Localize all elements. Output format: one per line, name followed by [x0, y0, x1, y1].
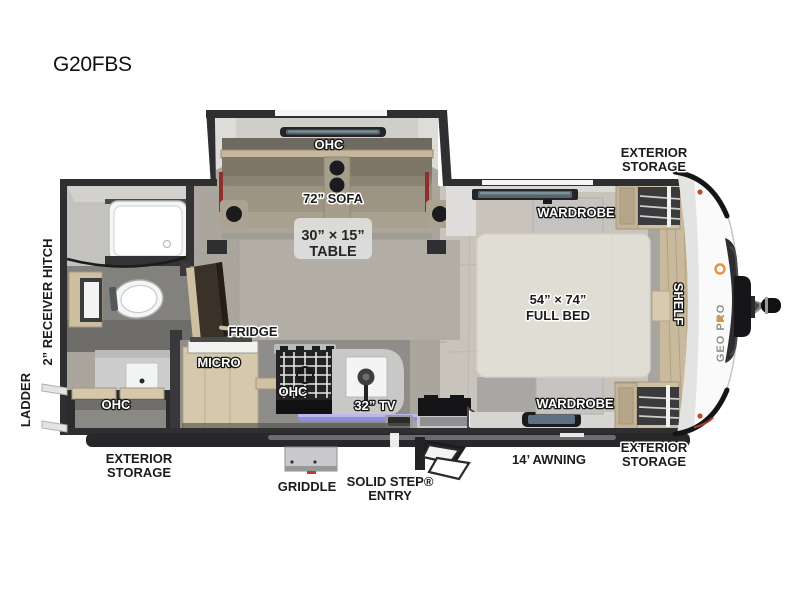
svg-text:54” × 74”: 54” × 74” [530, 292, 587, 307]
svg-text:72” SOFA: 72” SOFA [303, 191, 364, 206]
svg-text:GRIDDLE: GRIDDLE [278, 479, 337, 494]
svg-text:30” × 15”: 30” × 15” [301, 228, 364, 244]
svg-text:14’ AWNING: 14’ AWNING [512, 452, 586, 467]
svg-text:MICRO: MICRO [197, 355, 240, 370]
svg-text:EXTERIOR: EXTERIOR [106, 451, 173, 466]
svg-text:GEO PRO: GEO PRO [715, 304, 727, 362]
svg-text:LADDER: LADDER [18, 372, 33, 427]
svg-text:OHC: OHC [102, 397, 132, 412]
svg-text:WARDROBE: WARDROBE [536, 396, 614, 411]
svg-text:FULL BED: FULL BED [526, 308, 590, 323]
svg-text:32” TV: 32” TV [354, 398, 396, 413]
svg-text:SOLID STEP®: SOLID STEP® [347, 474, 434, 489]
svg-text:OHC: OHC [279, 384, 309, 399]
svg-text:WARDROBE: WARDROBE [537, 205, 615, 220]
svg-text:TABLE: TABLE [309, 244, 357, 260]
svg-text:EXTERIOR: EXTERIOR [621, 440, 688, 455]
svg-text:SHELF: SHELF [671, 283, 686, 326]
svg-text:2” RECEIVER HITCH: 2” RECEIVER HITCH [40, 238, 55, 365]
svg-text:STORAGE: STORAGE [622, 159, 686, 174]
svg-text:G20FBS: G20FBS [53, 53, 132, 76]
svg-text:FRIDGE: FRIDGE [228, 324, 277, 339]
svg-text:ENTRY: ENTRY [368, 488, 412, 503]
svg-text:STORAGE: STORAGE [107, 465, 171, 480]
svg-text:OHC: OHC [315, 137, 345, 152]
svg-text:EXTERIOR: EXTERIOR [621, 145, 688, 160]
svg-text:STORAGE: STORAGE [622, 454, 686, 469]
